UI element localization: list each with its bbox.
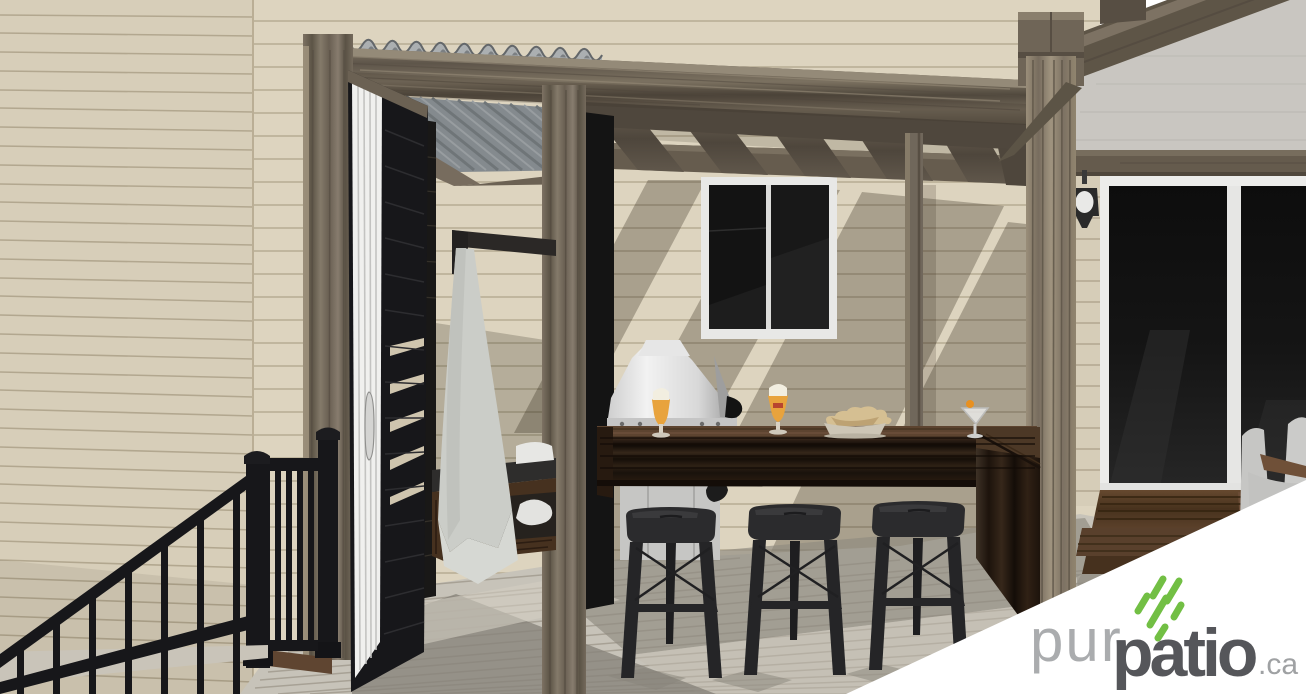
svg-text:pur: pur xyxy=(1030,607,1123,674)
svg-text:.ca: .ca xyxy=(1258,648,1298,681)
svg-text:patio: patio xyxy=(1112,615,1256,691)
